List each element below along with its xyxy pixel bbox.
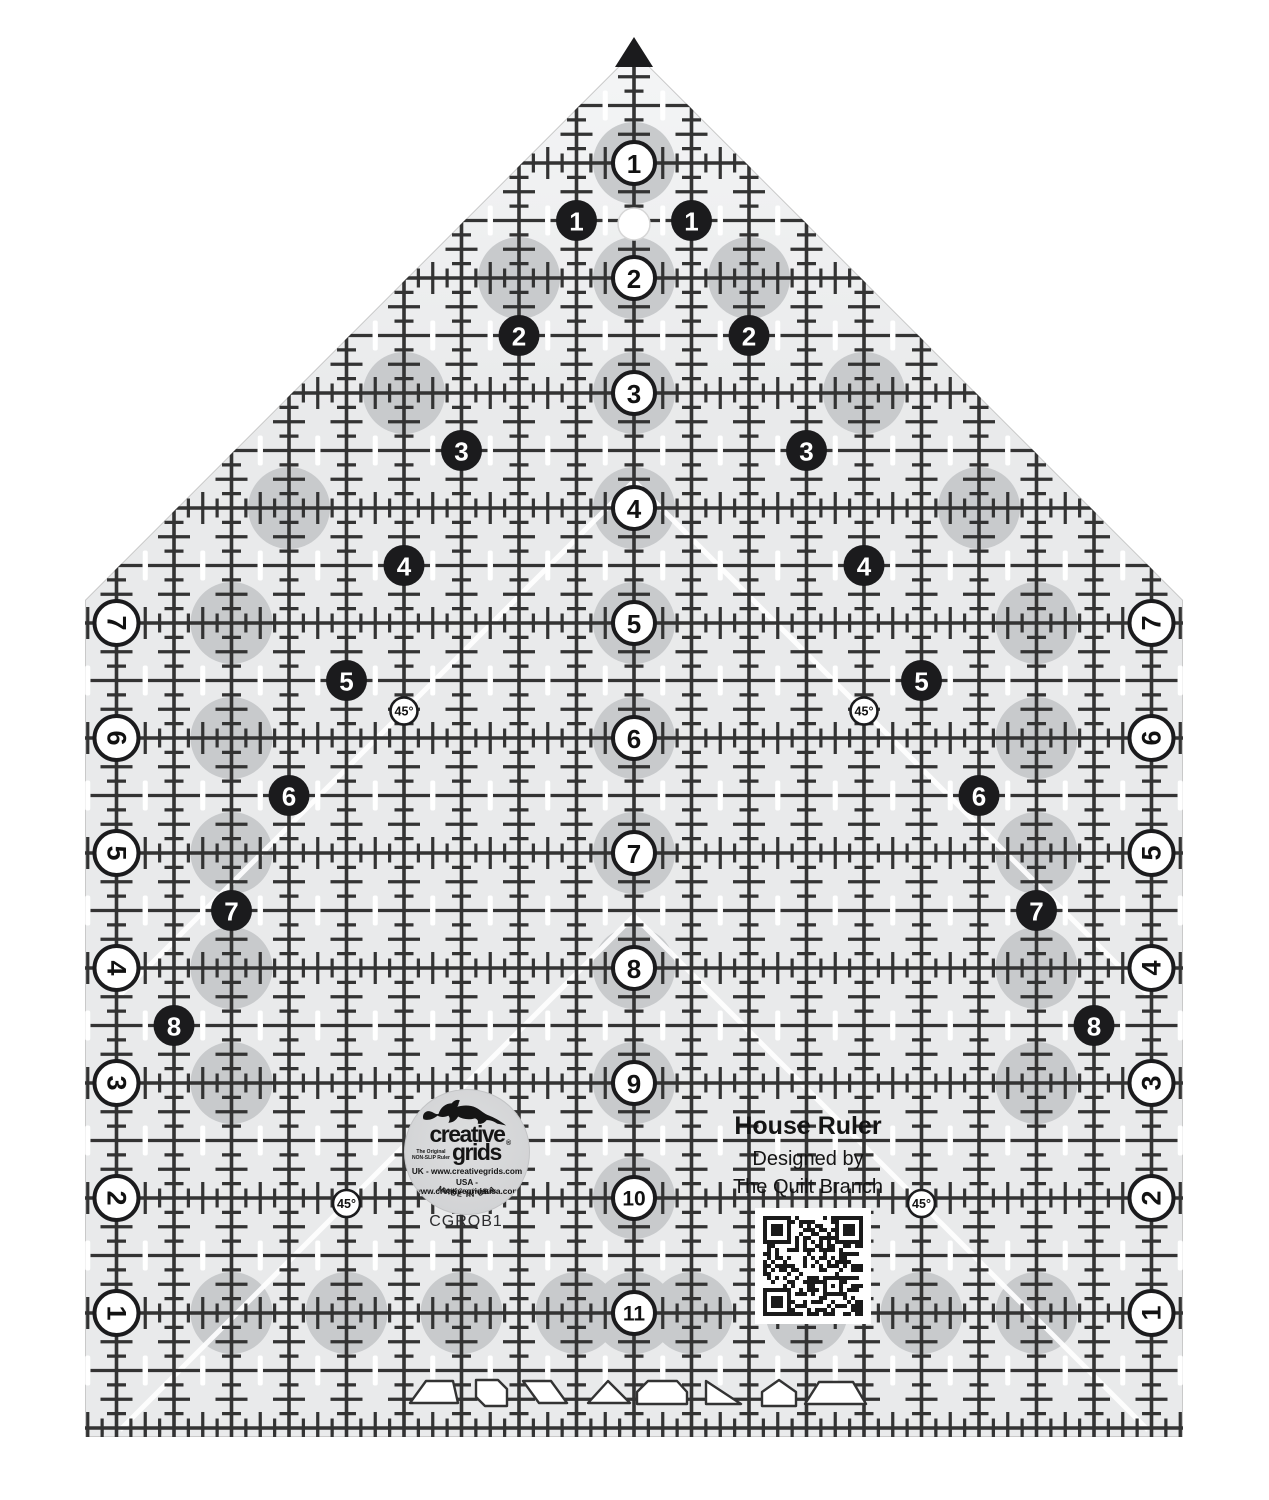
svg-text:3: 3: [1137, 1075, 1167, 1090]
product-photo: 1234567812345678123456789101176543217654…: [0, 0, 1269, 1500]
svg-text:8: 8: [1087, 1012, 1101, 1042]
svg-text:5: 5: [339, 667, 353, 697]
svg-text:7: 7: [1029, 897, 1043, 927]
title-block: House Ruler Designed by The Quilt Branch: [703, 1112, 913, 1199]
svg-text:10: 10: [622, 1188, 645, 1211]
svg-text:2: 2: [512, 322, 526, 352]
svg-text:45°: 45°: [395, 705, 414, 719]
svg-text:5: 5: [1137, 845, 1167, 860]
svg-text:MADE IN USA: MADE IN USA: [437, 1184, 497, 1199]
svg-text:1: 1: [684, 207, 698, 237]
svg-text:1: 1: [102, 1305, 132, 1320]
svg-text:3: 3: [799, 437, 813, 467]
svg-text:45°: 45°: [912, 1197, 931, 1211]
svg-text:7: 7: [627, 839, 641, 869]
svg-text:3: 3: [102, 1075, 132, 1090]
svg-text:1: 1: [627, 149, 641, 179]
svg-text:11: 11: [623, 1303, 646, 1326]
svg-text:5: 5: [914, 667, 928, 697]
svg-text:1: 1: [569, 207, 583, 237]
svg-text:7: 7: [224, 897, 238, 927]
svg-text:3: 3: [627, 379, 641, 409]
svg-text:2: 2: [102, 1190, 132, 1205]
svg-text:4: 4: [627, 494, 642, 524]
designer-name: The Quilt Branch: [703, 1176, 913, 1199]
apex-arrow-icon: [615, 37, 653, 67]
designed-by-label: Designed by: [703, 1148, 913, 1171]
svg-text:5: 5: [627, 609, 641, 639]
svg-text:4: 4: [397, 552, 412, 582]
svg-text:2: 2: [1137, 1190, 1167, 1205]
made-in-usa-text: MADE IN USA: [405, 1090, 529, 1214]
svg-text:2: 2: [627, 264, 641, 294]
svg-text:3: 3: [454, 437, 468, 467]
svg-text:1: 1: [1137, 1305, 1167, 1320]
svg-text:8: 8: [167, 1012, 181, 1042]
svg-text:2: 2: [742, 322, 756, 352]
model-number: CGRQB1: [411, 1213, 521, 1231]
svg-text:6: 6: [627, 724, 641, 754]
product-title: House Ruler: [703, 1112, 913, 1141]
svg-text:45°: 45°: [855, 705, 874, 719]
house-ruler-graphic: 1234567812345678123456789101176543217654…: [0, 0, 1269, 1500]
svg-text:6: 6: [972, 782, 986, 812]
svg-text:9: 9: [627, 1069, 641, 1099]
svg-text:7: 7: [102, 615, 132, 630]
svg-text:7: 7: [1137, 615, 1167, 630]
svg-text:45°: 45°: [337, 1197, 356, 1211]
svg-text:4: 4: [857, 552, 872, 582]
qr-code: [755, 1208, 871, 1324]
hanging-hole: [618, 208, 650, 240]
svg-text:8: 8: [627, 954, 641, 984]
svg-text:4: 4: [102, 960, 132, 975]
svg-text:5: 5: [102, 845, 132, 860]
svg-text:4: 4: [1137, 960, 1167, 975]
creative-grids-logo: creative grids ® The Original NON-SLIP R…: [404, 1089, 530, 1215]
svg-text:6: 6: [1137, 730, 1167, 745]
svg-text:6: 6: [102, 730, 132, 745]
svg-text:6: 6: [282, 782, 296, 812]
